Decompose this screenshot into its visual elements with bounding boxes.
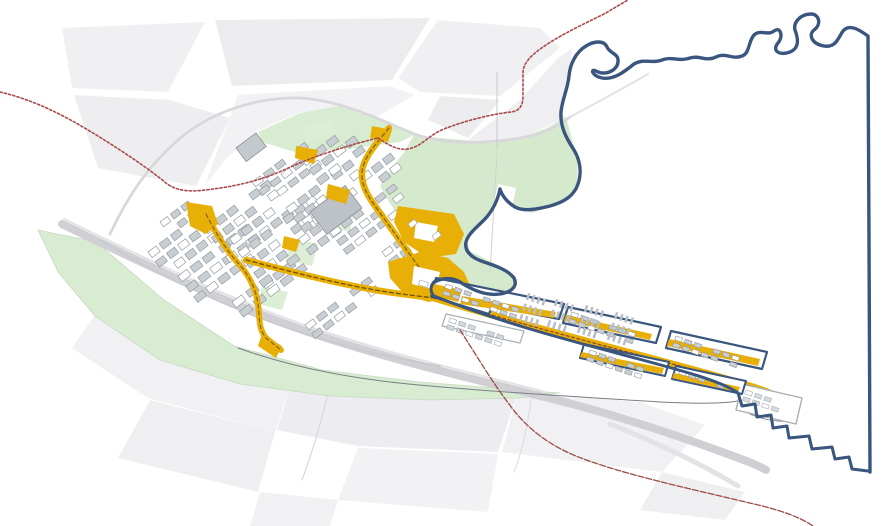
town-block-9-building-2 [382, 153, 394, 165]
town-block-11-building-9 [345, 302, 357, 313]
town-block-11-building-1 [316, 311, 328, 322]
town-block-8-building-6 [337, 235, 349, 246]
town-block-6-building-5 [342, 160, 354, 172]
rowhouses-2-building-11 [562, 325, 567, 332]
town-block-13-building-4 [177, 218, 188, 228]
rowhouses-4-building-10 [617, 336, 622, 343]
town-block-4-building-26 [317, 235, 329, 247]
map-canvas [0, 0, 882, 526]
town-block-3-building-16 [263, 207, 275, 219]
town-block-3-building-7 [222, 223, 234, 235]
town-block-2-building-14 [218, 272, 231, 284]
town-block-5-building-8 [292, 159, 304, 170]
field-s-5 [338, 448, 498, 512]
town-block-3-building-15 [252, 216, 264, 228]
rowhouses-3-building-11 [592, 331, 597, 338]
rowhouses-2-building-8 [547, 320, 552, 327]
town-block-1-building-12 [185, 248, 197, 260]
town-block-11-building-8 [334, 311, 346, 322]
town-block-1-building-13 [196, 240, 208, 252]
town-block-7-building-8 [316, 173, 329, 185]
town-block-2-building-7 [198, 271, 211, 283]
town-block-3-building-8 [234, 215, 246, 227]
town-block-8-building-14 [366, 227, 378, 238]
town-block-2-building-1 [190, 260, 203, 272]
town-block-1-building-6 [166, 247, 178, 259]
town-block-1-building-11 [174, 257, 186, 269]
town-block-3-building-9 [245, 206, 257, 218]
town-block-5-building-2 [274, 159, 286, 170]
town-block-1-building-2 [170, 229, 182, 241]
site-plan-map [0, 0, 882, 526]
town-block-4-building-8 [257, 248, 269, 260]
town-block-5-building-13 [299, 168, 311, 179]
town-block-11-building-7 [323, 319, 335, 330]
town-block-7-building-5 [321, 154, 334, 166]
north-road-ext [570, 74, 648, 117]
town-block-2-building-2 [202, 251, 215, 263]
town-block-1-building-8 [189, 230, 201, 242]
town-block-1-building-0 [148, 246, 160, 258]
town-block-5-building-7 [281, 168, 293, 179]
strip-buildings-south-building-10 [484, 337, 492, 343]
town-block-8-building-13 [354, 235, 366, 246]
rowhouses-3-building-9 [582, 328, 587, 335]
town-block-4-building-11 [291, 223, 303, 235]
town-block-13-building-1 [170, 209, 181, 219]
rowhouses-3-building-10 [587, 329, 592, 336]
town-block-6-building-2 [308, 185, 320, 197]
town-block-1-building-7 [178, 239, 190, 251]
field-nw-1 [62, 22, 205, 92]
town-block-3-building-2 [226, 205, 238, 217]
rowhouses-2-building-10 [557, 323, 562, 330]
town-block-4-building-9 [268, 240, 280, 252]
strip-buildings-south-building-11 [494, 341, 502, 347]
town-block-9-building-1 [371, 162, 383, 174]
town-block-11-building-2 [327, 302, 339, 313]
town-block-8-building-8 [359, 218, 371, 229]
town-block-1-building-1 [159, 238, 171, 250]
field-s-7 [250, 492, 338, 526]
town-block-4-building-14 [254, 267, 266, 279]
town-block-5-building-12 [288, 177, 300, 188]
rowhouses-2-building-9 [552, 322, 557, 329]
town-block-12-building-0 [382, 246, 394, 257]
town-block-8-building-12 [343, 244, 355, 255]
town-block-13-building-0 [160, 217, 171, 227]
field-n-2 [215, 18, 430, 86]
strip-buildings-d-building-11 [634, 373, 642, 379]
town-block-2-building-8 [210, 262, 223, 274]
town-block-3-building-22 [270, 217, 282, 229]
strip-buildings-d-building-10 [624, 369, 632, 375]
